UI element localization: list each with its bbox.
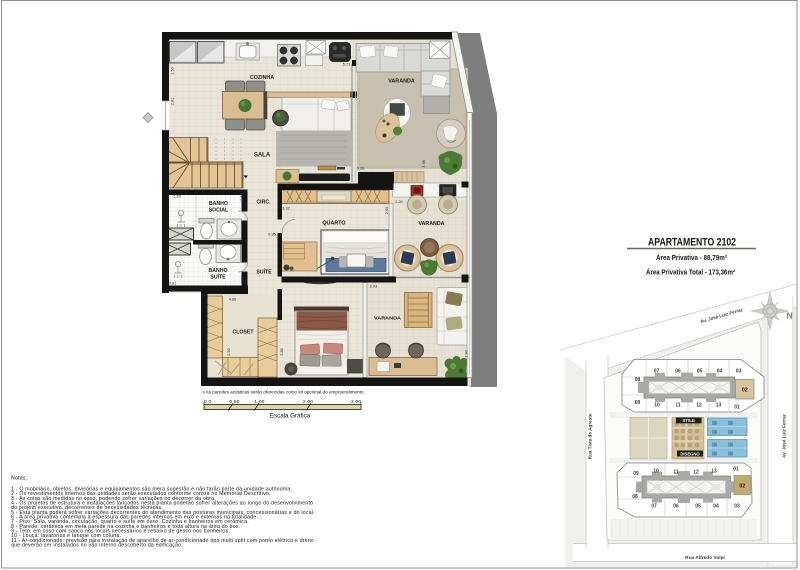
svg-text:08: 08 — [632, 494, 638, 500]
svg-text:0.0: 0.0 — [204, 399, 212, 405]
svg-text:APARTAMENTO 2102: APARTAMENTO 2102 — [648, 237, 736, 249]
svg-text:BANHO: BANHO — [209, 201, 228, 207]
svg-text:09: 09 — [633, 471, 639, 477]
svg-text:13: 13 — [711, 469, 717, 475]
svg-text:VARANDA: VARANDA — [388, 79, 415, 85]
svg-text:CLOSET: CLOSET — [232, 330, 254, 336]
svg-text:12: 12 — [693, 470, 699, 476]
svg-text:Área Privativa Total - 173,36m: Área Privativa Total - 173,36m² — [646, 268, 736, 277]
svg-text:SUÍTE: SUÍTE — [256, 268, 272, 276]
svg-text:SOCIAL: SOCIAL — [209, 208, 229, 214]
svg-text:Escala Gráfica: Escala Gráfica — [270, 413, 311, 420]
svg-text:11: 11 — [675, 403, 681, 409]
svg-text:02: 02 — [739, 484, 745, 490]
svg-text:SALA: SALA — [254, 153, 271, 159]
svg-text:13: 13 — [716, 403, 722, 409]
svg-text:1.33: 1.33 — [240, 193, 244, 200]
svg-text:SUÍTE: SUÍTE — [210, 273, 226, 281]
svg-text:1.38: 1.38 — [241, 275, 245, 282]
svg-text:4.86: 4.86 — [229, 298, 236, 302]
svg-text:06: 06 — [675, 368, 681, 374]
svg-text:2.90: 2.90 — [465, 350, 469, 357]
svg-text:3.00: 3.00 — [351, 399, 361, 405]
svg-text:01: 01 — [734, 405, 740, 411]
svg-text:Área Privativa - 88,79m²: Área Privativa - 88,79m² — [656, 253, 728, 262]
svg-text:02: 02 — [742, 388, 748, 394]
svg-text:QUARTO: QUARTO — [322, 221, 345, 227]
svg-text:04: 04 — [713, 504, 719, 510]
svg-text:VARANDA: VARANDA — [419, 221, 445, 227]
svg-text:N: N — [787, 311, 793, 321]
svg-text:0.85: 0.85 — [268, 233, 275, 237]
svg-text:1.00: 1.00 — [254, 399, 264, 405]
svg-text:05: 05 — [695, 504, 701, 510]
svg-text:CIRC.: CIRC. — [256, 200, 271, 206]
svg-text:DISEGNO: DISEGNO — [680, 451, 700, 456]
svg-text:3.20: 3.20 — [357, 167, 364, 171]
svg-text:Rua Alfredo Volpi: Rua Alfredo Volpi — [685, 555, 725, 561]
svg-text:▪ As paredes acústicas serão: ▪ As paredes acústicas serão oferecidas … — [203, 390, 365, 395]
svg-text:10: 10 — [654, 403, 660, 409]
svg-text:STILE: STILE — [682, 418, 695, 423]
svg-text:COZINHA: COZINHA — [250, 75, 274, 81]
svg-text:2.20: 2.20 — [173, 195, 180, 199]
svg-text:5.71: 5.71 — [343, 63, 350, 67]
svg-text:11: 11 — [673, 470, 679, 476]
svg-text:08: 08 — [635, 377, 641, 383]
svg-text:04: 04 — [717, 368, 723, 374]
svg-text:2.31: 2.31 — [169, 282, 176, 286]
svg-text:Av. José Luiz Ferraz: Av. José Luiz Ferraz — [782, 413, 787, 458]
svg-text:07: 07 — [651, 504, 657, 510]
svg-text:09: 09 — [635, 400, 641, 406]
svg-text:03: 03 — [736, 368, 742, 374]
svg-text:07: 07 — [654, 368, 660, 374]
svg-text:12: 12 — [696, 403, 702, 409]
svg-text:05: 05 — [697, 368, 703, 374]
svg-text:3.32: 3.32 — [282, 207, 289, 211]
svg-text:que deverão ser instalados no: que deverão ser instalados no vão intern… — [11, 543, 183, 549]
svg-text:BANHO: BANHO — [208, 268, 227, 274]
svg-text:01: 01 — [733, 467, 739, 473]
svg-text:10: 10 — [653, 469, 659, 475]
svg-text:2.40: 2.40 — [385, 207, 389, 214]
svg-text:2.20: 2.20 — [395, 200, 402, 204]
svg-text:2.81: 2.81 — [171, 98, 175, 105]
svg-text:2.50: 2.50 — [227, 348, 231, 355]
svg-text:03: 03 — [734, 504, 740, 510]
svg-text:2.85: 2.85 — [280, 348, 284, 355]
svg-text:VARANDA: VARANDA — [374, 316, 402, 321]
svg-text:Rua Tista do Agreste: Rua Tista do Agreste — [588, 413, 593, 459]
svg-text:Notas:: Notas: — [11, 476, 27, 482]
svg-text:2.00: 2.00 — [303, 399, 313, 405]
svg-text:1.50: 1.50 — [171, 67, 175, 74]
svg-text:06: 06 — [673, 504, 679, 510]
svg-text:3.98: 3.98 — [422, 160, 426, 167]
svg-text:0.50: 0.50 — [229, 399, 239, 405]
svg-text:2.93: 2.93 — [370, 285, 377, 289]
